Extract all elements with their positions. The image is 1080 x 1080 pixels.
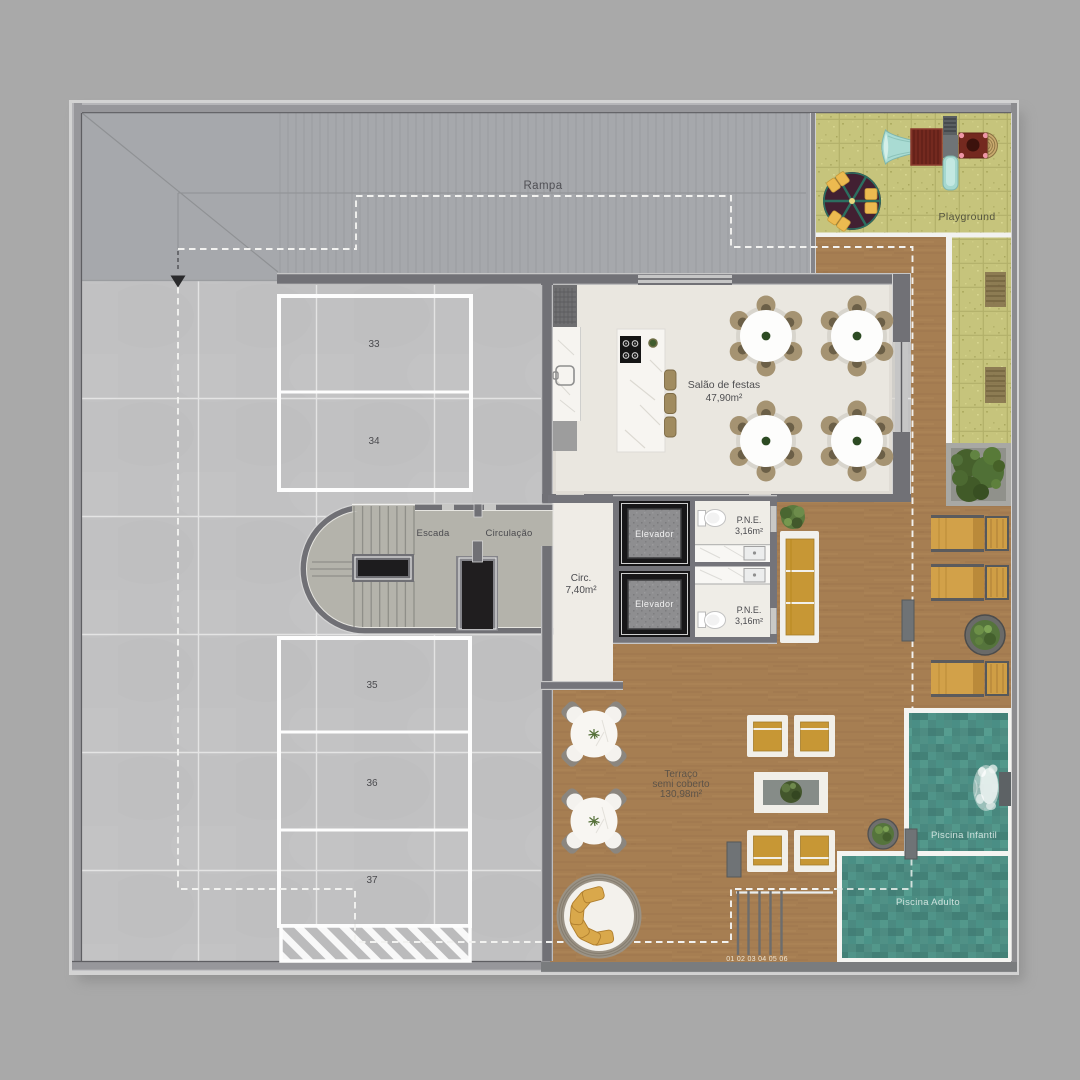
svg-text:37: 37 bbox=[366, 875, 378, 886]
svg-text:Rampa: Rampa bbox=[523, 180, 562, 192]
svg-text:Piscina Adulto: Piscina Adulto bbox=[896, 897, 960, 908]
svg-text:3,16m²: 3,16m² bbox=[735, 616, 763, 626]
svg-text:47,90m²: 47,90m² bbox=[706, 393, 743, 404]
svg-text:34: 34 bbox=[368, 436, 380, 447]
svg-text:33: 33 bbox=[368, 339, 380, 350]
svg-text:Elevador: Elevador bbox=[635, 599, 674, 609]
svg-text:35: 35 bbox=[366, 680, 378, 691]
svg-text:Elevador: Elevador bbox=[635, 529, 674, 539]
svg-text:Piscina Infantil: Piscina Infantil bbox=[931, 830, 997, 841]
svg-text:Circulação: Circulação bbox=[486, 528, 533, 539]
svg-text:01 02 03 04 05 06: 01 02 03 04 05 06 bbox=[726, 956, 788, 963]
svg-text:Salão de festas: Salão de festas bbox=[688, 379, 760, 391]
svg-text:130,98m²: 130,98m² bbox=[660, 789, 703, 800]
svg-text:Escada: Escada bbox=[417, 528, 450, 539]
svg-text:Playground: Playground bbox=[938, 211, 995, 223]
svg-text:Circ.: Circ. bbox=[571, 573, 592, 584]
svg-text:7,40m²: 7,40m² bbox=[565, 585, 597, 596]
svg-text:3,16m²: 3,16m² bbox=[735, 526, 763, 536]
svg-text:36: 36 bbox=[366, 778, 378, 789]
svg-text:P.N.E.: P.N.E. bbox=[737, 515, 762, 525]
svg-text:P.N.E.: P.N.E. bbox=[737, 605, 762, 615]
